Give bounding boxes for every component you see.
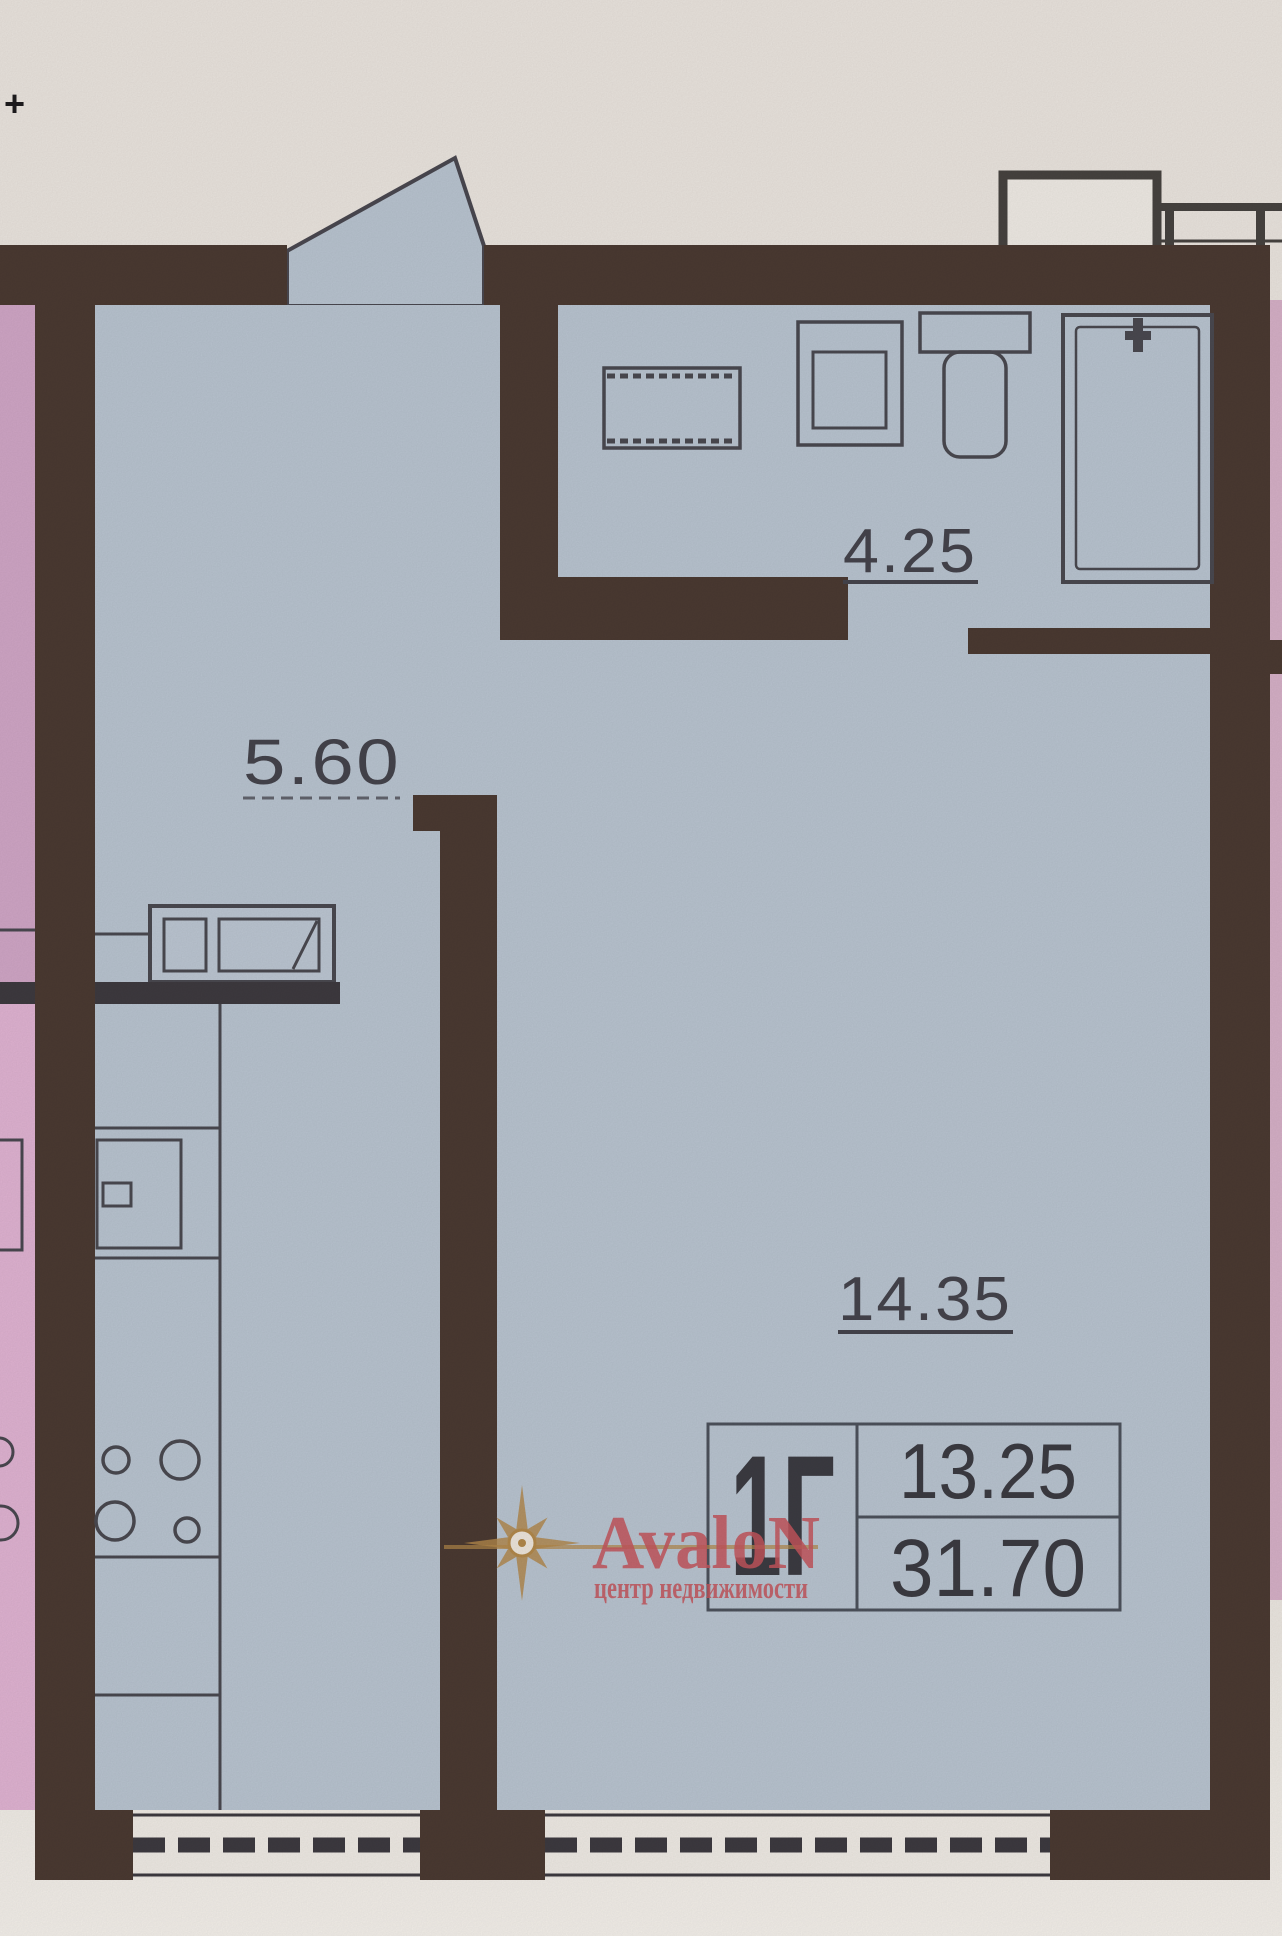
floor-plan-svg: 4.25 5.60 14.35 1Г 13.25 31.70 AvaloN це… xyxy=(0,0,1282,1936)
floorplan-photo: 4.25 5.60 14.35 1Г 13.25 31.70 AvaloN це… xyxy=(0,0,1282,1936)
photo-grain-overlay xyxy=(0,0,1282,1936)
